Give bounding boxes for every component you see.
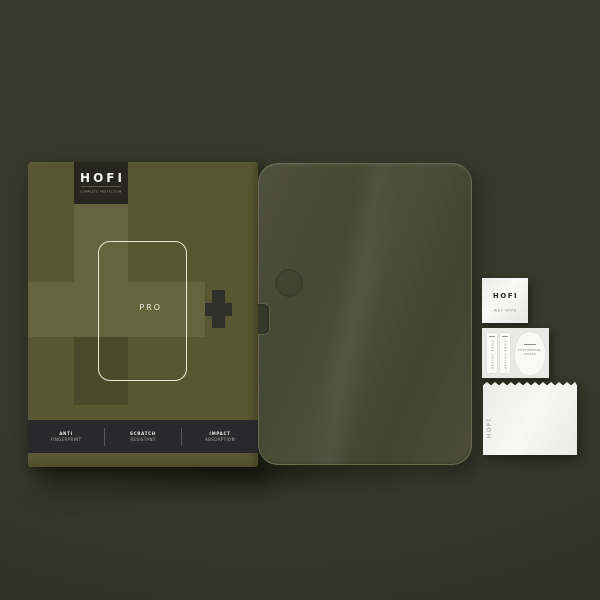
guide-sticker-label: GUIDE STICKER <box>491 340 494 370</box>
sticker-dash <box>524 344 536 345</box>
dust-removal-label-line2: STICKER <box>519 352 542 356</box>
strip-dash <box>489 336 495 337</box>
wet-wipe-brand: HOFI <box>492 292 518 300</box>
camera-circle-icon <box>275 269 303 297</box>
product-box: HOFI COMPLETE PROTECTION PRO ANTI FINGER… <box>28 162 258 467</box>
plus-icon-horizontal-bar <box>205 303 232 316</box>
feature-impact-absorption: IMPACT ABSORPTION <box>194 430 246 442</box>
strip-dash <box>502 336 508 337</box>
feature-anti-fingerprint: ANTI FINGERPRINT <box>40 430 92 442</box>
glass-reflection <box>259 164 471 464</box>
plus-icon <box>176 290 231 328</box>
product-photo-scene: HOFI COMPLETE PROTECTION PRO ANTI FINGER… <box>0 0 600 600</box>
microfiber-cloth-wrapper: HOFI <box>483 382 577 455</box>
brand-logo-text: HOFI <box>77 172 125 184</box>
brand-tagline: COMPLETE PROTECTION <box>80 190 121 193</box>
microfiber-cloth: HOFI <box>483 382 577 455</box>
feature-line1: SCRATCH <box>117 430 169 436</box>
tempered-glass-protector <box>258 163 472 465</box>
wet-wipe-label: WET WIPE <box>493 308 516 312</box>
cloth-brand: HOFI <box>487 418 493 438</box>
feature-line2: FINGERPRINT <box>40 437 92 443</box>
brand-logo-block: HOFI COMPLETE PROTECTION <box>74 162 128 204</box>
sticker-sheet: GUIDE STICKER GUIDE STICKER DUST REMOVAL… <box>482 328 549 378</box>
camera-notch-cutout <box>258 303 270 335</box>
feature-divider <box>181 428 182 446</box>
guide-sticker-label: GUIDE STICKER <box>504 340 507 370</box>
feature-line2: RESISTANT <box>117 437 169 443</box>
feature-line2: ABSORPTION <box>194 437 246 443</box>
logo-divider <box>81 186 121 187</box>
feature-line1: ANTI <box>40 430 92 436</box>
guide-sticker-strip: GUIDE STICKER <box>500 333 510 373</box>
feature-divider <box>104 428 105 446</box>
guide-sticker-strip: GUIDE STICKER <box>487 333 497 373</box>
model-label: PRO <box>132 304 162 312</box>
feature-scratch-resistant: SCRATCH RESISTANT <box>117 430 169 442</box>
wet-wipe-sachet: HOFI WET WIPE <box>482 278 528 323</box>
dust-removal-sticker: DUST REMOVAL STICKER <box>515 332 545 375</box>
dust-removal-label: DUST REMOVAL STICKER <box>519 348 542 357</box>
feature-line1: IMPACT <box>194 430 246 436</box>
feature-bar: ANTI FINGERPRINT SCRATCH RESISTANT IMPAC… <box>28 420 258 453</box>
